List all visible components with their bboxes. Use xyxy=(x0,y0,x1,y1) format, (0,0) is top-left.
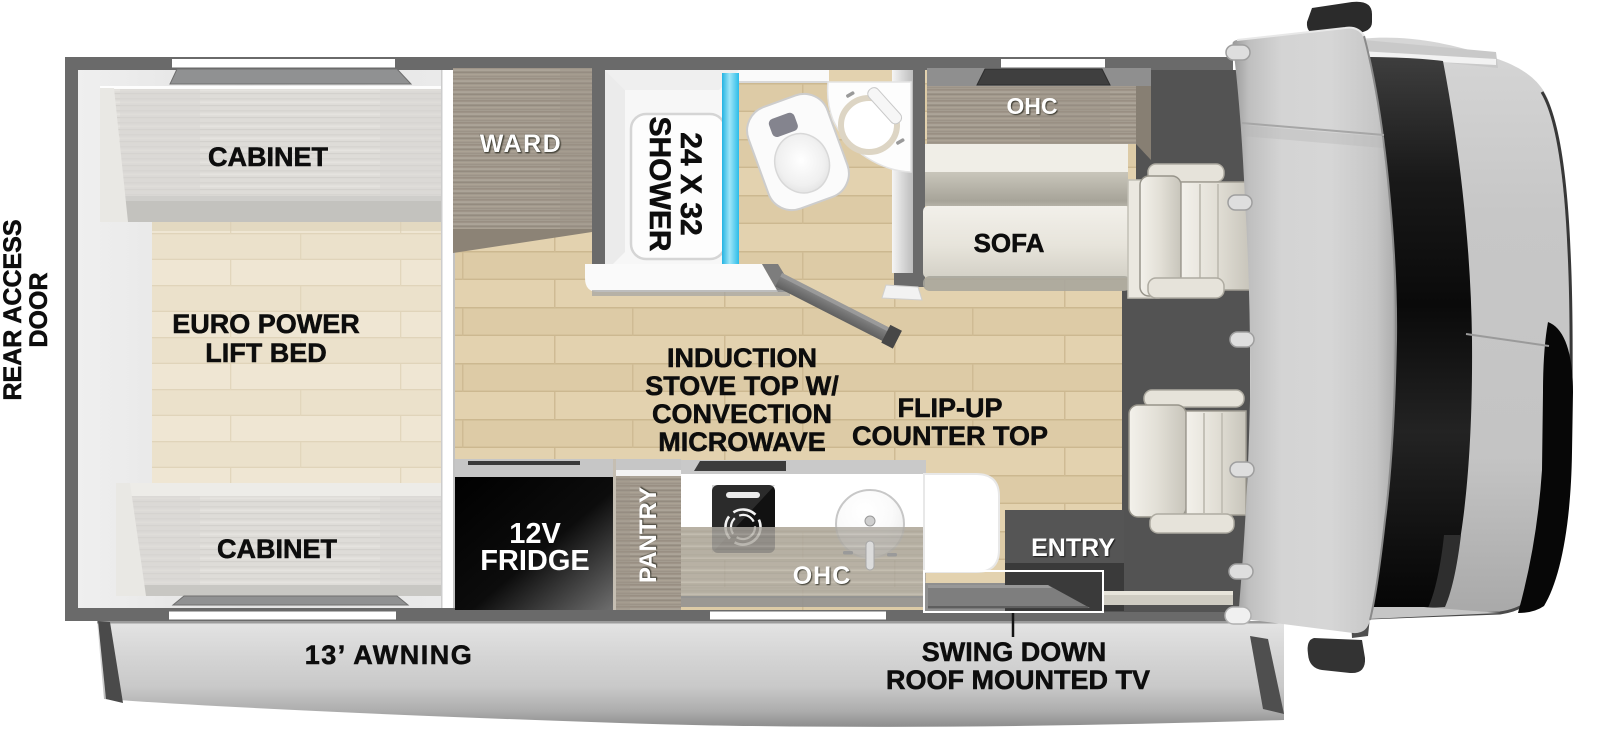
svg-text:CONVECTION: CONVECTION xyxy=(652,399,832,429)
svg-text:ROOF MOUNTED TV: ROOF MOUNTED TV xyxy=(886,665,1150,695)
svg-text:STOVE TOP W/: STOVE TOP W/ xyxy=(645,371,839,401)
svg-text:FRIDGE: FRIDGE xyxy=(480,545,590,577)
svg-text:FLIP-UP: FLIP-UP xyxy=(898,393,1003,423)
svg-text:CABINET: CABINET xyxy=(208,142,329,172)
svg-text:OHC: OHC xyxy=(793,562,852,590)
svg-text:EURO POWER: EURO POWER xyxy=(172,309,360,339)
svg-text:LIFT BED: LIFT BED xyxy=(205,338,327,368)
svg-text:ENTRY: ENTRY xyxy=(1031,534,1115,562)
svg-text:SWING DOWN: SWING DOWN xyxy=(922,637,1106,667)
svg-text:CABINET: CABINET xyxy=(217,534,338,564)
svg-text:DOOR: DOOR xyxy=(25,273,53,348)
svg-text:REAR ACCESS: REAR ACCESS xyxy=(0,219,27,400)
svg-text:13’ AWNING: 13’ AWNING xyxy=(305,640,474,670)
svg-text:24 X 32: 24 X 32 xyxy=(674,132,707,235)
svg-text:OHC: OHC xyxy=(1006,93,1057,119)
svg-text:WARD: WARD xyxy=(480,130,562,158)
svg-text:MICROWAVE: MICROWAVE xyxy=(658,427,826,457)
svg-text:COUNTER TOP: COUNTER TOP xyxy=(852,421,1048,451)
svg-text:SOFA: SOFA xyxy=(974,228,1045,258)
svg-text:PANTRY: PANTRY xyxy=(635,487,662,583)
svg-text:INDUCTION: INDUCTION xyxy=(667,343,817,373)
svg-text:SHOWER: SHOWER xyxy=(643,117,676,252)
